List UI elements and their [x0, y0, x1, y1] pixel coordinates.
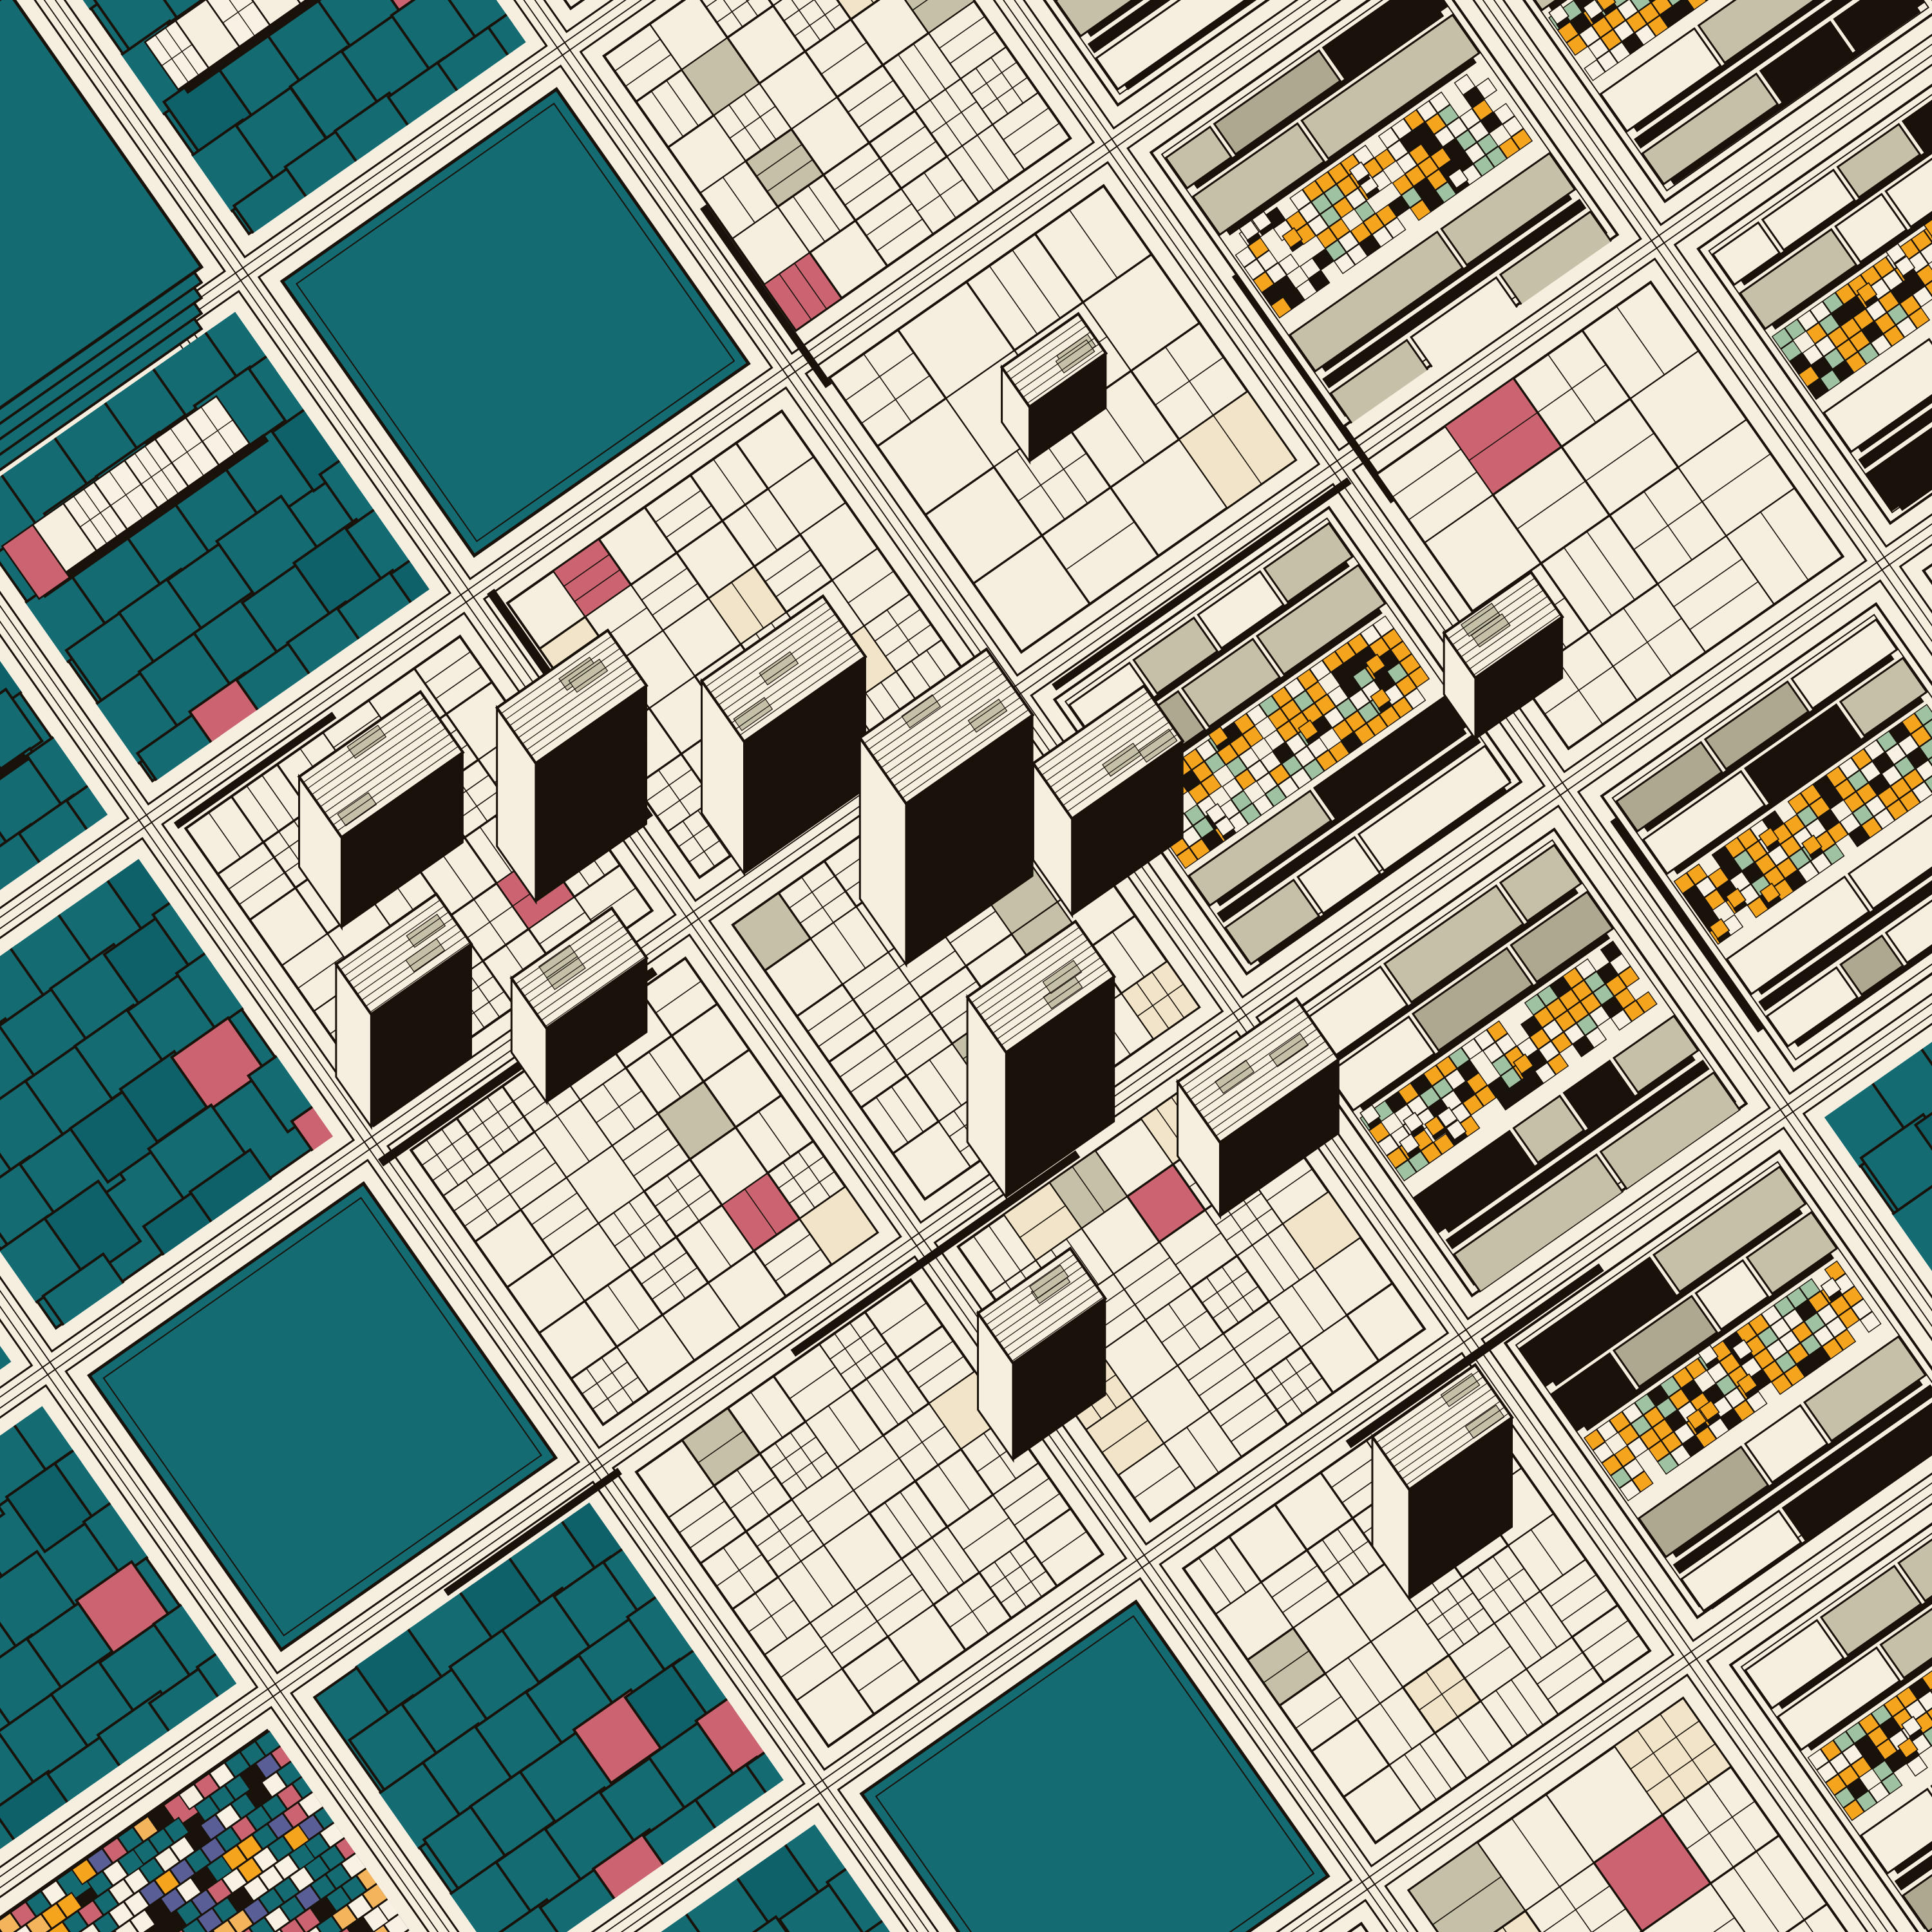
artwork-canvas: [0, 0, 1932, 1932]
generative-artwork: [0, 0, 1932, 1932]
